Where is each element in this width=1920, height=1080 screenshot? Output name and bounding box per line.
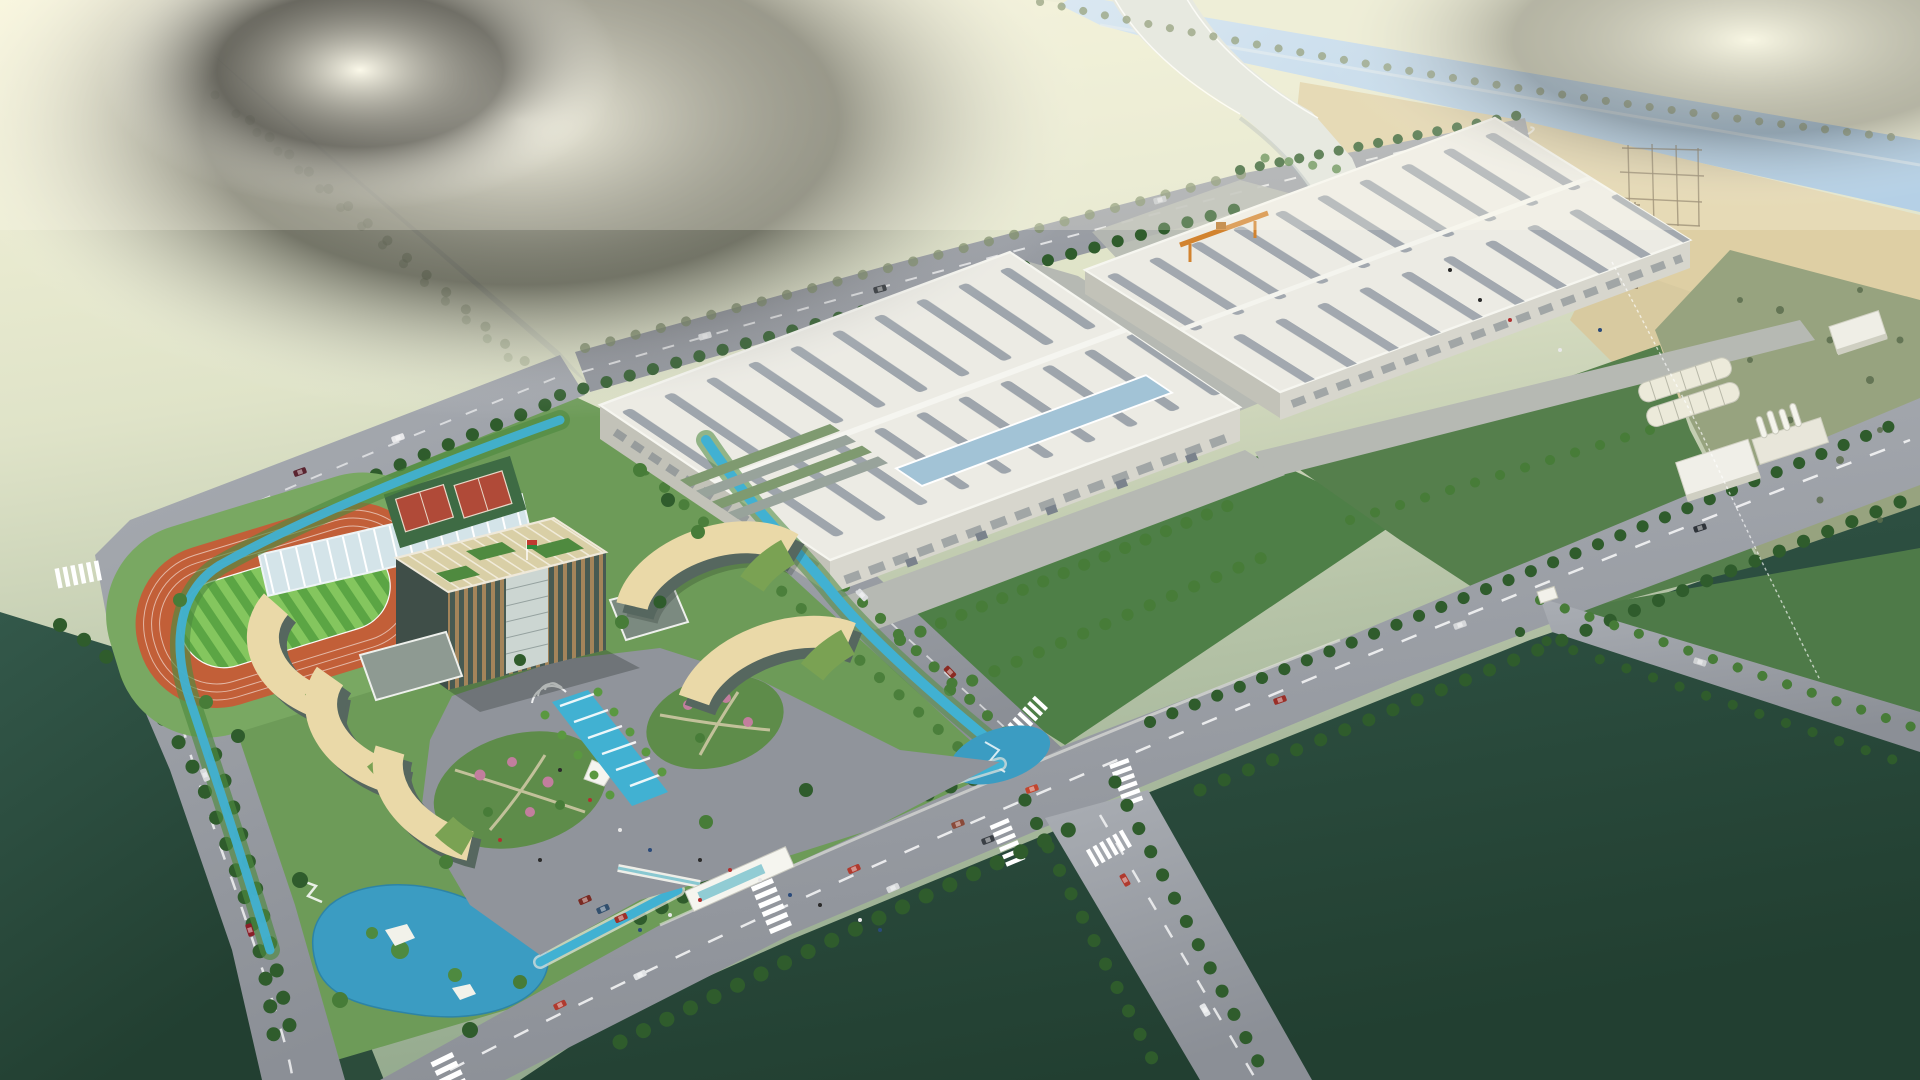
person-dot bbox=[858, 918, 862, 922]
person-dot bbox=[498, 838, 502, 842]
person-dot bbox=[1558, 348, 1562, 352]
crescent5-terraces bbox=[444, 826, 468, 844]
person-dot bbox=[588, 798, 592, 802]
person-dot bbox=[1448, 268, 1452, 272]
person-dot bbox=[638, 928, 642, 932]
person-dot bbox=[818, 903, 822, 907]
person-dot bbox=[648, 848, 652, 852]
person-dot bbox=[1508, 318, 1512, 322]
person-dot bbox=[698, 858, 702, 862]
person-dot bbox=[618, 828, 622, 832]
person-dot bbox=[788, 893, 792, 897]
person-dot bbox=[538, 858, 542, 862]
person-dot bbox=[1598, 328, 1602, 332]
person-dot bbox=[558, 768, 562, 772]
aerial-rendering: Aerial architectural rendering of an ind… bbox=[0, 0, 1920, 1080]
person-dot bbox=[878, 928, 882, 932]
person-dot bbox=[1478, 298, 1482, 302]
person-dot bbox=[758, 878, 762, 882]
person-dot bbox=[728, 868, 732, 872]
rendering-canvas: Aerial architectural rendering of an ind… bbox=[0, 0, 1920, 1080]
top-haze bbox=[0, 0, 1920, 230]
person-dot bbox=[668, 913, 672, 917]
person-dot bbox=[698, 898, 702, 902]
